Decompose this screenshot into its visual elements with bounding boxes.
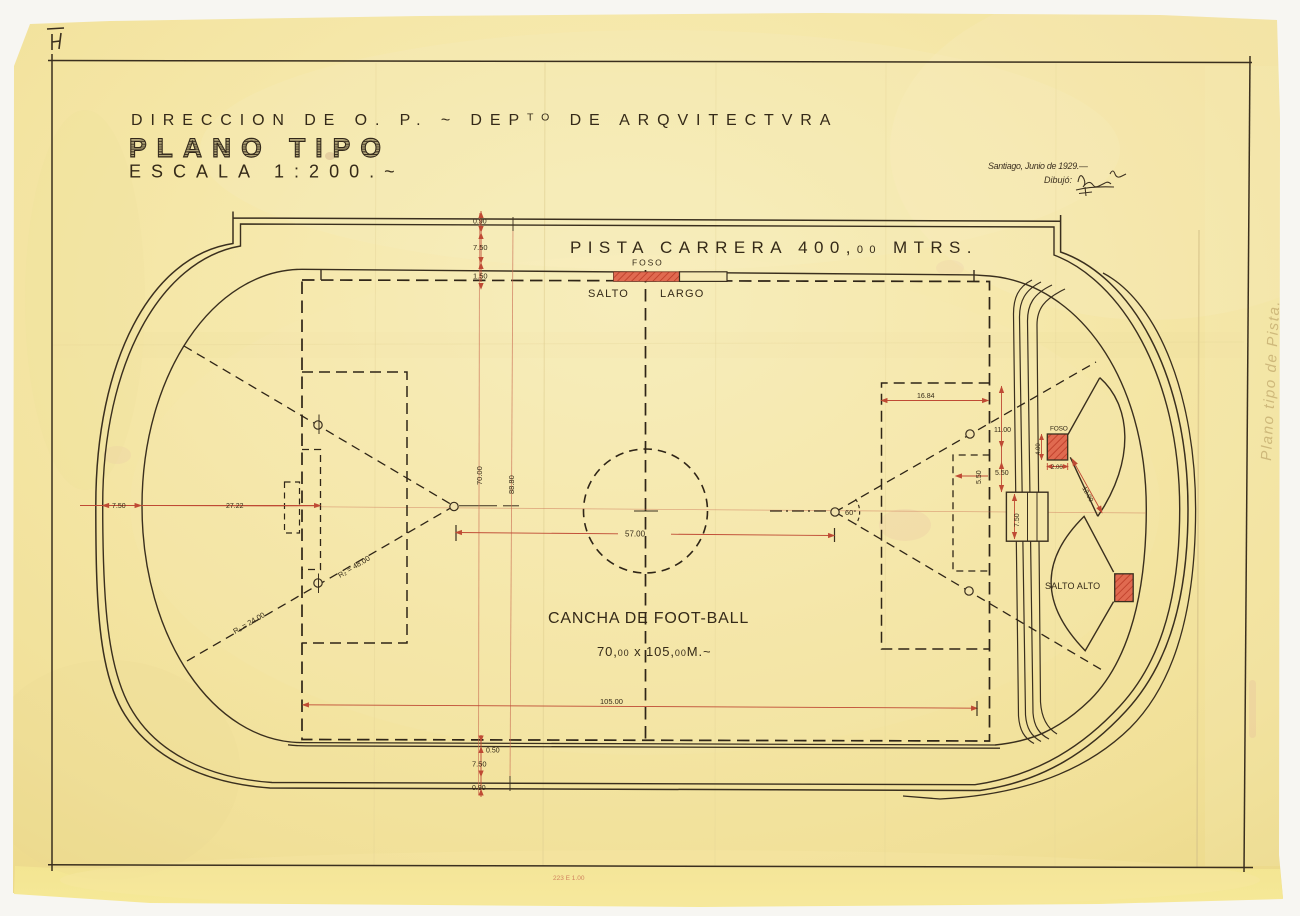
svg-text:5.50: 5.50 [976,470,983,484]
svg-text:FOSO: FOSO [1050,426,1068,433]
svg-text:ESCALA 1:200.~: ESCALA 1:200.~ [129,162,405,182]
svg-text:DIRECCION DE O. P. ~ DEPTO DE: DIRECCION DE O. P. ~ DEPTO DE ARQVITECTV… [131,112,838,130]
svg-text:0.50: 0.50 [486,748,500,755]
svg-text:223 E 1.00: 223 E 1.00 [553,875,585,882]
svg-text:60°: 60° [845,508,856,517]
svg-text:27.22: 27.22 [226,503,244,510]
svg-text:7.50: 7.50 [112,503,126,510]
svg-text:CANCHA DE FOOT-BALL: CANCHA DE FOOT-BALL [548,610,749,627]
svg-text:5.50: 5.50 [995,470,1009,477]
svg-text:57.00: 57.00 [625,530,646,539]
svg-text:1.50: 1.50 [473,272,488,281]
svg-text:Santiago, Junio de 1929.—: Santiago, Junio de 1929.— [988,161,1088,171]
svg-text:0.90: 0.90 [473,219,487,226]
svg-text:SALTO: SALTO [588,288,629,300]
svg-text:7.50: 7.50 [472,760,487,769]
svg-text:0.90: 0.90 [472,785,486,792]
svg-text:7.50: 7.50 [473,243,488,252]
svg-text:70.00: 70.00 [475,466,484,485]
svg-text:2.00: 2.00 [1051,465,1063,471]
svg-text:Dibujó:: Dibujó: [1044,175,1073,185]
svg-text:LARGO: LARGO [660,288,705,300]
svg-text:88.80: 88.80 [507,475,516,494]
svg-text:105.00: 105.00 [600,697,623,706]
svg-text:4.00: 4.00 [1036,443,1042,455]
svg-text:SALTO ALTO: SALTO ALTO [1045,581,1100,591]
svg-text:PISTA CARRERA 400,00 MTRS.: PISTA CARRERA 400,00 MTRS. [570,238,978,257]
svg-text:7.50: 7.50 [1014,513,1021,527]
svg-text:PLANO TIPO: PLANO TIPO [129,133,391,163]
svg-text:70,00 x 105,00M.~: 70,00 x 105,00M.~ [597,644,711,659]
svg-text:11.00: 11.00 [994,427,1011,434]
svg-text:16.84: 16.84 [917,393,935,400]
svg-text:FOSO: FOSO [632,258,664,268]
